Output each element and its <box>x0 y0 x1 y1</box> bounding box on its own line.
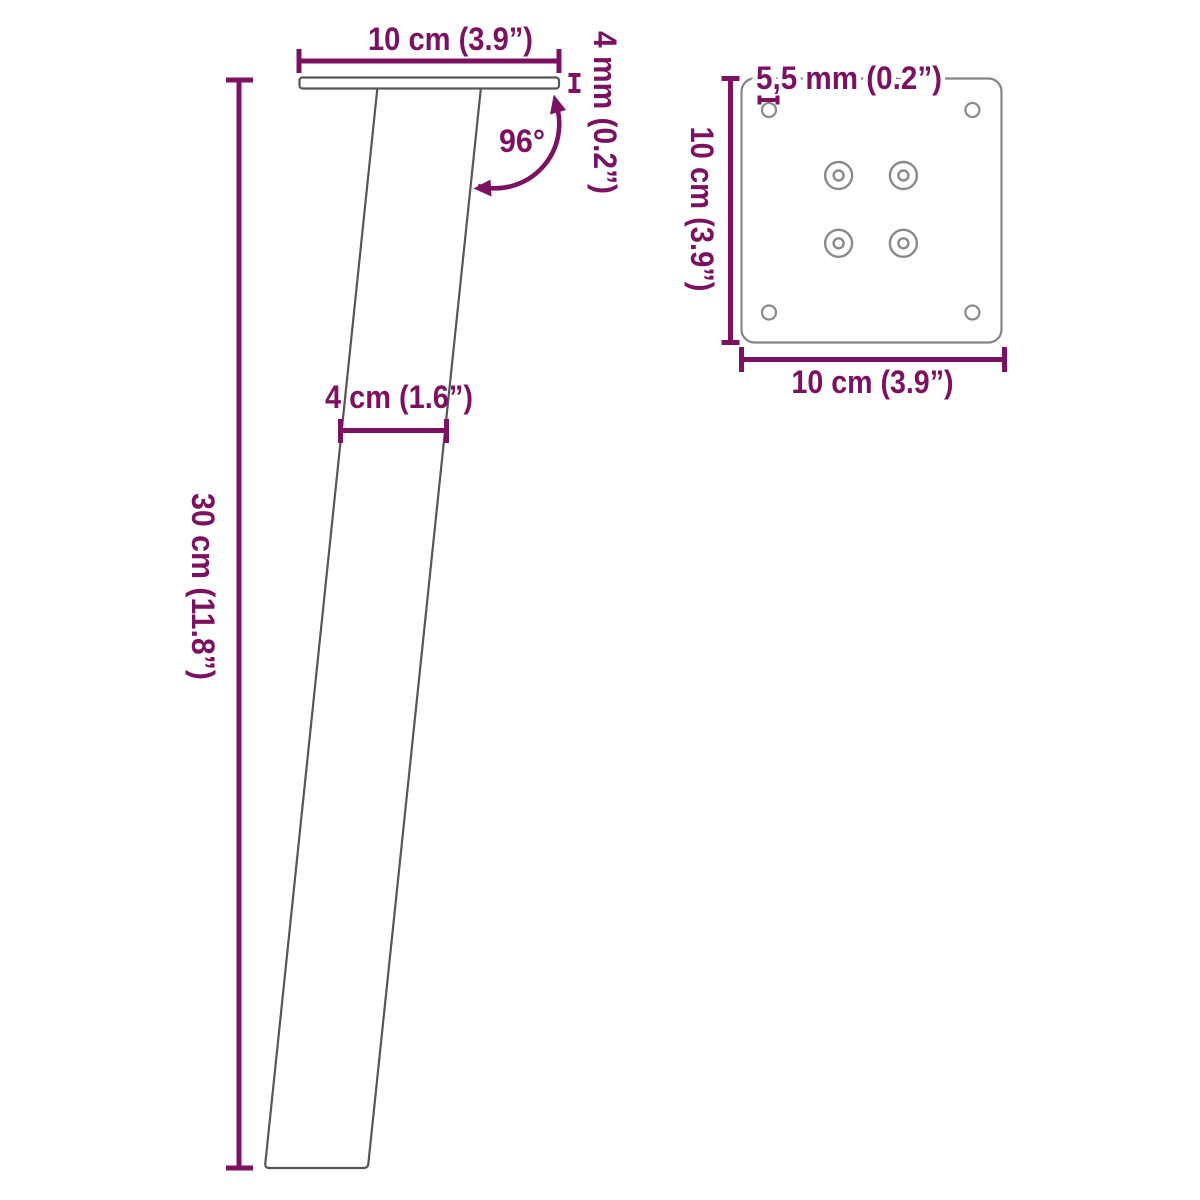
svg-text:4 mm (0.2”): 4 mm (0.2”) <box>587 31 623 194</box>
svg-text:96°: 96° <box>499 123 545 159</box>
svg-text:10 cm (3.9”): 10 cm (3.9”) <box>792 364 954 400</box>
svg-text:4 cm (1.6”): 4 cm (1.6”) <box>325 379 473 415</box>
svg-text:10 cm (3.9”): 10 cm (3.9”) <box>684 127 720 292</box>
svg-text:10 cm (3.9”): 10 cm (3.9”) <box>368 21 533 57</box>
svg-text:30 cm (11.8”): 30 cm (11.8”) <box>185 493 221 680</box>
svg-text:5,5 mm (0.2”): 5,5 mm (0.2”) <box>756 60 942 96</box>
